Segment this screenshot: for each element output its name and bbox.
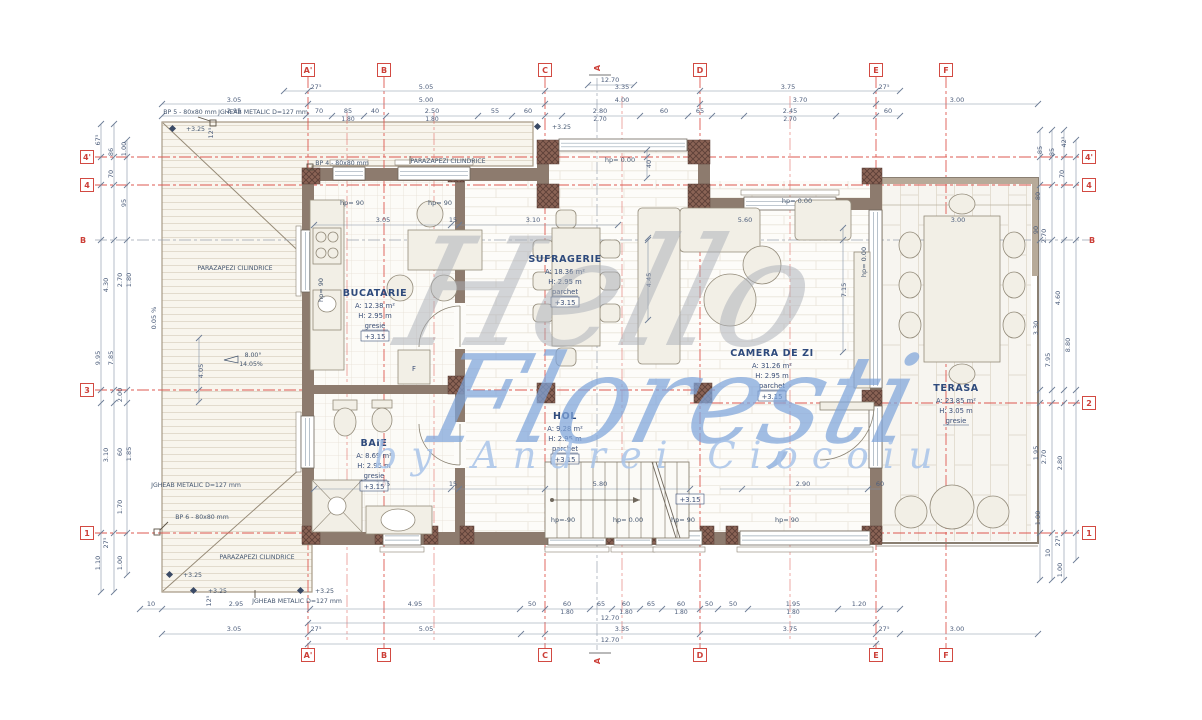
window-sill <box>653 547 705 552</box>
bistro-table <box>930 485 974 529</box>
section-marker: A <box>593 657 602 664</box>
dim-label: 1.80 <box>341 116 355 123</box>
leader-bp5 <box>198 117 210 121</box>
dim-label: 7.15 <box>840 283 848 297</box>
dim-label: 86 <box>107 148 115 156</box>
downspout-bp6 <box>154 529 160 535</box>
window-sill <box>611 547 655 552</box>
hp-label: hp= 90 <box>317 278 325 302</box>
dim-label: 60 <box>524 107 532 115</box>
hp-label: hp= 0.00 <box>782 197 812 205</box>
window-sill <box>296 412 301 472</box>
dim-label: 9.95 <box>94 351 102 365</box>
room-level-box: +3.15 <box>365 333 386 341</box>
chair <box>1003 272 1025 298</box>
dim-label: 2.50 <box>425 107 439 115</box>
dim-label: 2.45 <box>783 107 797 115</box>
dim-label: 5.00 <box>419 96 433 104</box>
chair <box>899 272 921 298</box>
pier <box>537 184 559 208</box>
grid-marker-letter: B <box>1089 236 1095 245</box>
room-name-bucatarie: BUCATARIE <box>343 288 407 299</box>
dim-label: 10 <box>147 600 155 608</box>
grid-marker-letter: E <box>873 66 878 75</box>
grid-marker-letter: E <box>873 651 878 660</box>
dim-label: 1.20 <box>852 600 866 608</box>
dim-label: 4.00 <box>615 96 629 104</box>
grid-marker-letter: A' <box>304 66 313 75</box>
window <box>333 167 365 180</box>
dim-label: 3.35 <box>615 83 629 91</box>
grid-marker-letter: A' <box>304 651 313 660</box>
dim-label: 90 <box>1032 226 1040 234</box>
dim-label: 3.05 <box>376 216 390 224</box>
dim-label: 0.05 % <box>150 307 158 330</box>
hp-label: hp= 0.00 <box>613 516 643 524</box>
grid-marker-letter: 4 <box>84 181 90 190</box>
grid-marker-letter: D <box>697 66 704 75</box>
dim-label: 1.10 <box>94 556 102 570</box>
dim-label: 3.10 <box>102 448 110 462</box>
grid-marker-letter: 4 <box>1086 181 1092 190</box>
dim-label: 1.80 <box>125 273 133 287</box>
room-height: H: 2.95 m <box>358 312 392 320</box>
room-level-box: +3.15 <box>364 483 385 491</box>
grid-marker-letter: B <box>80 236 86 245</box>
dim-label: 1.70 <box>116 500 124 514</box>
dim-label: 3.00 <box>950 625 964 633</box>
floor-plan-page: A'A'BBCCDDEEFF4'4B314'4B21AA12.7027⁵5.05… <box>0 0 1202 720</box>
pier <box>688 140 710 164</box>
hp-label: hp= 90 <box>671 516 695 524</box>
dim-label: 3.35 <box>615 625 629 633</box>
dim-label: 27⁵ <box>311 625 322 633</box>
dim-label: 3.05 <box>227 625 241 633</box>
stair-level-box: +3.15 <box>680 496 701 504</box>
bistro-chair <box>895 496 927 528</box>
grid-marker-letter: C <box>542 651 548 660</box>
grid-marker-letter: B <box>381 651 387 660</box>
dim-label: 2.80 <box>1056 456 1064 470</box>
dim-label: 60 <box>116 448 124 456</box>
hp-label: hp= 90 <box>340 199 364 207</box>
hp-label: hp= 0.00 <box>860 247 868 277</box>
dim-label: 50 <box>705 600 713 608</box>
dim-label: 70 <box>1058 170 1066 178</box>
dim-label: 4.95 <box>408 600 422 608</box>
terrace-table <box>924 216 1000 362</box>
dim-label: 1.00 <box>116 556 124 570</box>
hp-label: hp= 90 <box>775 516 799 524</box>
dim-label: 12.70 <box>601 636 620 644</box>
window <box>301 416 314 468</box>
dim-label: 27⁵ <box>1054 535 1062 546</box>
dim-label: 67⁵ <box>94 134 102 145</box>
dim-label: 3.70 <box>793 96 807 104</box>
dim-label: 3.05 <box>227 96 241 104</box>
level-diamond <box>534 123 541 130</box>
floor-plan-canvas: A'A'BBCCDDEEFF4'4B314'4B21AA12.7027⁵5.05… <box>0 0 1202 720</box>
window-sill <box>296 226 301 296</box>
dim-label: 60 <box>884 107 892 115</box>
vanity-sink <box>381 509 415 531</box>
dim-label: 70 <box>315 107 323 115</box>
hp-label: hp= 0.00 <box>605 156 635 164</box>
dim-label: 27⁵ <box>879 83 890 91</box>
dim-label: 27⁵ <box>879 625 890 633</box>
kitchen-counter <box>310 200 344 370</box>
dim-label: 60 <box>622 600 630 608</box>
chair <box>949 194 975 214</box>
bidet <box>372 408 392 432</box>
bistro-chair <box>977 496 1009 528</box>
grid-marker-letter: C <box>542 66 548 75</box>
dim-label: 8.80 <box>1064 338 1072 352</box>
jgheab-label: JGHEAB METALIC D=127 mm <box>251 598 342 605</box>
dim-label: 2.90 <box>796 480 810 488</box>
bp5-label: BP 5 - 80x80 mm <box>163 109 216 116</box>
dim-label: 12.70 <box>601 614 620 622</box>
dim-label: 27⁵ <box>102 537 110 548</box>
stair-start-dot <box>550 498 554 502</box>
room-area: A: 23.85 m² <box>936 397 976 405</box>
dim-label: 50 <box>528 600 536 608</box>
section-marker: A <box>593 64 602 71</box>
room-floor: gresie <box>365 322 386 330</box>
dim-label: 85 <box>1036 146 1044 154</box>
room-area: A: 12.38 m² <box>355 302 395 310</box>
window <box>398 167 470 180</box>
parazapezi-label: PARAZAPEZI CILINDRICE <box>219 554 294 561</box>
dim-label: 5.05 <box>419 83 433 91</box>
dim-label: 3.00 <box>950 96 964 104</box>
dim-label: 60 <box>660 107 668 115</box>
dim-label: 40 <box>645 160 653 168</box>
grid-marker-letter: 2 <box>1086 399 1092 408</box>
dim-label: 1.00 <box>1034 511 1042 525</box>
watermark-line3: by Andrei Ciocoiu <box>374 434 947 477</box>
dim-label: 1.85 <box>125 447 133 461</box>
room-floor: gresie <box>946 417 967 425</box>
dim-label: 7.95 <box>1044 353 1052 367</box>
roof-level-label: +3.25 <box>552 124 571 131</box>
grid-marker-letter: D <box>697 651 704 660</box>
bp6-label: BP 6 - 80x80 mm <box>175 514 228 521</box>
grid-marker-letter: 4' <box>83 153 91 162</box>
pier <box>460 526 474 544</box>
dim-label: 5.05 <box>419 625 433 633</box>
dim-label: 80 <box>1034 192 1042 200</box>
dim-label: 27⁵ <box>311 83 322 91</box>
dim-label: 55 <box>491 107 499 115</box>
room-name-terasa: TERASA <box>933 383 978 394</box>
chair <box>1003 312 1025 338</box>
grid-marker-letter: 3 <box>84 386 90 395</box>
grid-marker-letter: 1 <box>84 529 90 538</box>
slope-label: 14.05% <box>239 361 263 368</box>
pier <box>862 168 882 184</box>
dim-label: 60 <box>876 480 884 488</box>
dim-label: 15 <box>449 480 457 488</box>
bp4-label: BP 4 - 80x80 mm <box>315 160 368 167</box>
window <box>740 531 870 545</box>
jgheab-label: JGHEAB METALIC D=127 mm <box>150 482 241 489</box>
hp-label: hp=-90 <box>551 516 575 524</box>
dim-label: 85 <box>1048 148 1056 156</box>
dim-label: 65 <box>647 600 655 608</box>
dim-label: 1.00 <box>1056 563 1064 577</box>
dim-label: 2.95 <box>229 600 243 608</box>
terrace-wall-top <box>876 178 1038 184</box>
dim-label: 1.80 <box>425 116 439 123</box>
shower-drain <box>328 497 346 515</box>
pier <box>688 184 710 208</box>
dim-label: 4.05 <box>197 364 205 378</box>
dim-label: 2.70 <box>116 273 124 287</box>
jgheab-label: JGHEAB METALIC D=127 mm <box>217 109 308 116</box>
pier <box>537 140 559 164</box>
grid-marker-letter: F <box>943 66 948 75</box>
dim-label: 1.95 <box>1032 446 1040 460</box>
parazapezi-label: PARAZAPEZI CILINDRICE <box>410 158 485 165</box>
dim-label: 1.00 <box>120 142 128 156</box>
roof-level-label: +3.25 <box>315 588 334 595</box>
dim-label: 2.70 <box>1040 450 1048 464</box>
dim-label: 12⁵ <box>205 595 213 606</box>
chair <box>899 232 921 258</box>
dim-label: 42⁵ <box>1060 136 1068 147</box>
parazapezi-label: PARAZAPEZI CILINDRICE <box>197 265 272 272</box>
dim-label: 2.70 <box>1040 229 1048 243</box>
dim-label: 2.70 <box>783 116 797 123</box>
dim-label: 4.30 <box>102 278 110 292</box>
roof-level-label: +3.25 <box>183 572 202 579</box>
dim-label: 70 <box>107 170 115 178</box>
dim-label: 7.85 <box>107 351 115 365</box>
bidet-tank <box>372 400 392 408</box>
dim-label: 95 <box>120 199 128 207</box>
dim-label: 40 <box>371 107 379 115</box>
window-sill <box>545 547 609 552</box>
dim-label: 3.75 <box>781 83 795 91</box>
room-height: H: 3.05 m <box>939 407 973 415</box>
dim-label: 1.80 <box>786 609 800 616</box>
pier <box>726 526 738 544</box>
wall-partition-bath <box>314 385 455 394</box>
dim-label: 65 <box>696 107 704 115</box>
roof-level-label: +3.25 <box>186 126 205 133</box>
dim-label: 4.60 <box>1054 291 1062 305</box>
dim-label: 85 <box>344 107 352 115</box>
window-sill <box>737 547 873 552</box>
toilet <box>334 408 356 436</box>
dim-label: 3.30 <box>1032 321 1040 335</box>
grid-marker-letter: B <box>381 66 387 75</box>
grid-marker-letter: 4' <box>1085 153 1093 162</box>
dim-label: 1.80 <box>619 609 633 616</box>
chair <box>949 364 975 384</box>
dim-label: 50 <box>729 600 737 608</box>
dim-label: 3.00 <box>951 216 965 224</box>
dim-label: 10 <box>1044 549 1052 557</box>
dim-label: 1.80 <box>674 609 688 616</box>
dim-label: 60 <box>563 600 571 608</box>
dim-label: 2.80 <box>593 107 607 115</box>
dim-label: 65 <box>597 600 605 608</box>
chair <box>1003 232 1025 258</box>
dim-label: 5.80 <box>593 480 607 488</box>
dim-label: 3.75 <box>783 625 797 633</box>
dim-label: 1.95 <box>786 600 800 608</box>
grid-marker-letter: F <box>943 651 948 660</box>
window <box>559 139 687 151</box>
window-sill <box>380 547 424 552</box>
grid-marker-letter: 1 <box>1086 529 1092 538</box>
dim-label: 2.70 <box>593 116 607 123</box>
roof-level-label: +3.25 <box>208 588 227 595</box>
dim-label: 2.00 <box>116 388 124 402</box>
slope-label: 8.00° <box>245 351 262 359</box>
dim-label: 60 <box>677 600 685 608</box>
dim-label: 12⁵ <box>207 127 215 138</box>
dim-label: 1.80 <box>560 609 574 616</box>
window-sill <box>741 190 839 195</box>
